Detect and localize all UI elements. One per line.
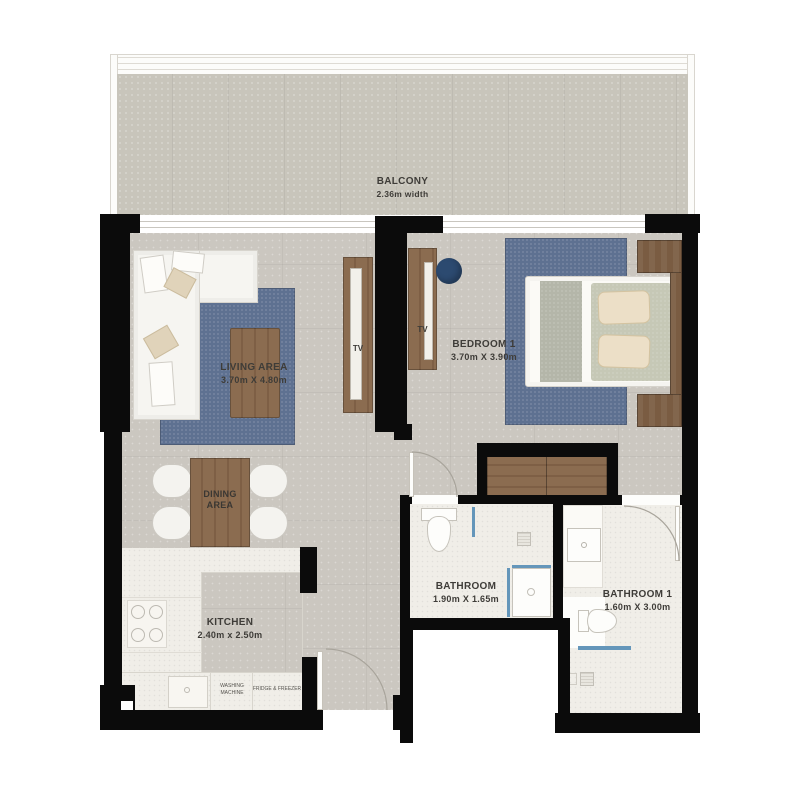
kitchen-dim: 2.40m x 2.50m bbox=[160, 630, 300, 641]
bathroom1-dim: 1.60m X 3.00m bbox=[570, 602, 705, 613]
bedroom-name: BEDROOM 1 bbox=[414, 339, 554, 352]
living-name: LIVING AREA bbox=[184, 362, 324, 375]
room-label-bedroom: BEDROOM 1 3.70m X 3.90m bbox=[414, 339, 554, 363]
room-label-living: LIVING AREA 3.70m X 4.80m bbox=[184, 362, 324, 386]
kitchen-name: KITCHEN bbox=[160, 617, 300, 630]
bedroom-dim: 3.70m X 3.90m bbox=[414, 352, 554, 363]
room-label-kitchen: KITCHEN 2.40m x 2.50m bbox=[160, 617, 300, 641]
bathroom-dim: 1.90m X 1.65m bbox=[404, 594, 528, 605]
floor-plan: BALCONY 2.36m width LIVING AREA 3.70m X … bbox=[0, 0, 800, 800]
balcony-name: BALCONY bbox=[117, 176, 688, 189]
room-label-bathroom1: BATHROOM 1 1.60m X 3.00m bbox=[570, 589, 705, 613]
fridge-freezer-label: FRIDGE & FREEZER bbox=[250, 686, 304, 693]
tv-label-living: TV bbox=[343, 344, 373, 353]
room-label-dining: DINING AREA bbox=[190, 489, 250, 512]
door-swing-arcs bbox=[0, 0, 800, 800]
tv-label-bedroom: TV bbox=[408, 325, 437, 334]
washing-machine-label: WASHING MACHINE bbox=[210, 683, 254, 696]
balcony-dim: 2.36m width bbox=[117, 189, 688, 200]
living-dim: 3.70m X 4.80m bbox=[184, 375, 324, 386]
room-label-bathroom: BATHROOM 1.90m X 1.65m bbox=[404, 581, 528, 605]
room-label-balcony: BALCONY 2.36m width bbox=[117, 176, 688, 199]
bathroom-name: BATHROOM bbox=[404, 581, 528, 594]
bathroom1-name: BATHROOM 1 bbox=[570, 589, 705, 602]
